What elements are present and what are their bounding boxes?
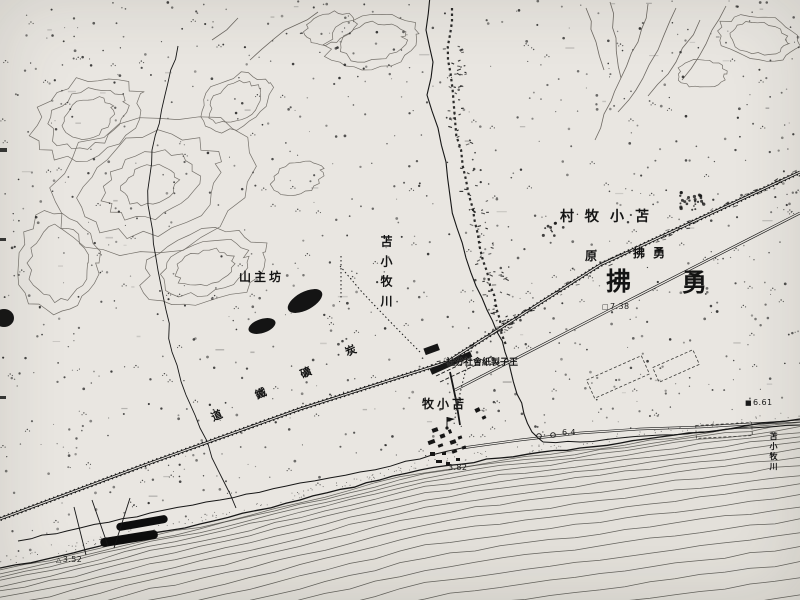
yufutsu-large-left-char: 勇	[682, 271, 707, 296]
contour-lines	[18, 2, 800, 315]
spot-352: △3.52	[56, 556, 82, 564]
river-mouth-name-vertical: 苫小牧川	[769, 432, 777, 472]
spot-382: 3.82	[447, 464, 467, 472]
factory-name: 社分社會紙製子王	[446, 358, 518, 367]
hill-name: 山主坊	[239, 271, 284, 283]
plain-name-left: 原	[585, 250, 597, 262]
spot-64: 6.4	[561, 429, 576, 437]
benchmark-icon: □	[602, 303, 609, 311]
spot-height-value: 7.38	[610, 302, 629, 311]
spot-height-value: 3.82	[448, 463, 467, 472]
benchmark-icon: △	[56, 556, 62, 564]
village-name: 村牧小苫	[560, 209, 660, 223]
sea-area	[0, 419, 800, 600]
spot-661: ■6.61	[745, 399, 772, 407]
spot-height-value: 6.61	[753, 398, 772, 407]
spot-height-value: 3.52	[63, 555, 82, 564]
plain-name-right: 拂勇	[633, 247, 673, 259]
spot-738: □7.38	[602, 303, 629, 311]
yufutsu-large-right-char: 拂	[606, 270, 631, 295]
benchmark-icon: ■	[745, 399, 752, 407]
town-name: 牧小苫	[422, 398, 467, 410]
map-canvas: 村牧小苫原拂勇拂勇苫小牧川山主坊牧小苫社分社會紙製子王炭礦鐵道苫小牧川△3.52…	[0, 0, 800, 600]
map-linework	[0, 0, 800, 600]
river-name-vertical: 苫小牧川	[380, 235, 392, 315]
spot-height-value: 6.4	[562, 428, 576, 437]
piers	[0, 148, 168, 555]
